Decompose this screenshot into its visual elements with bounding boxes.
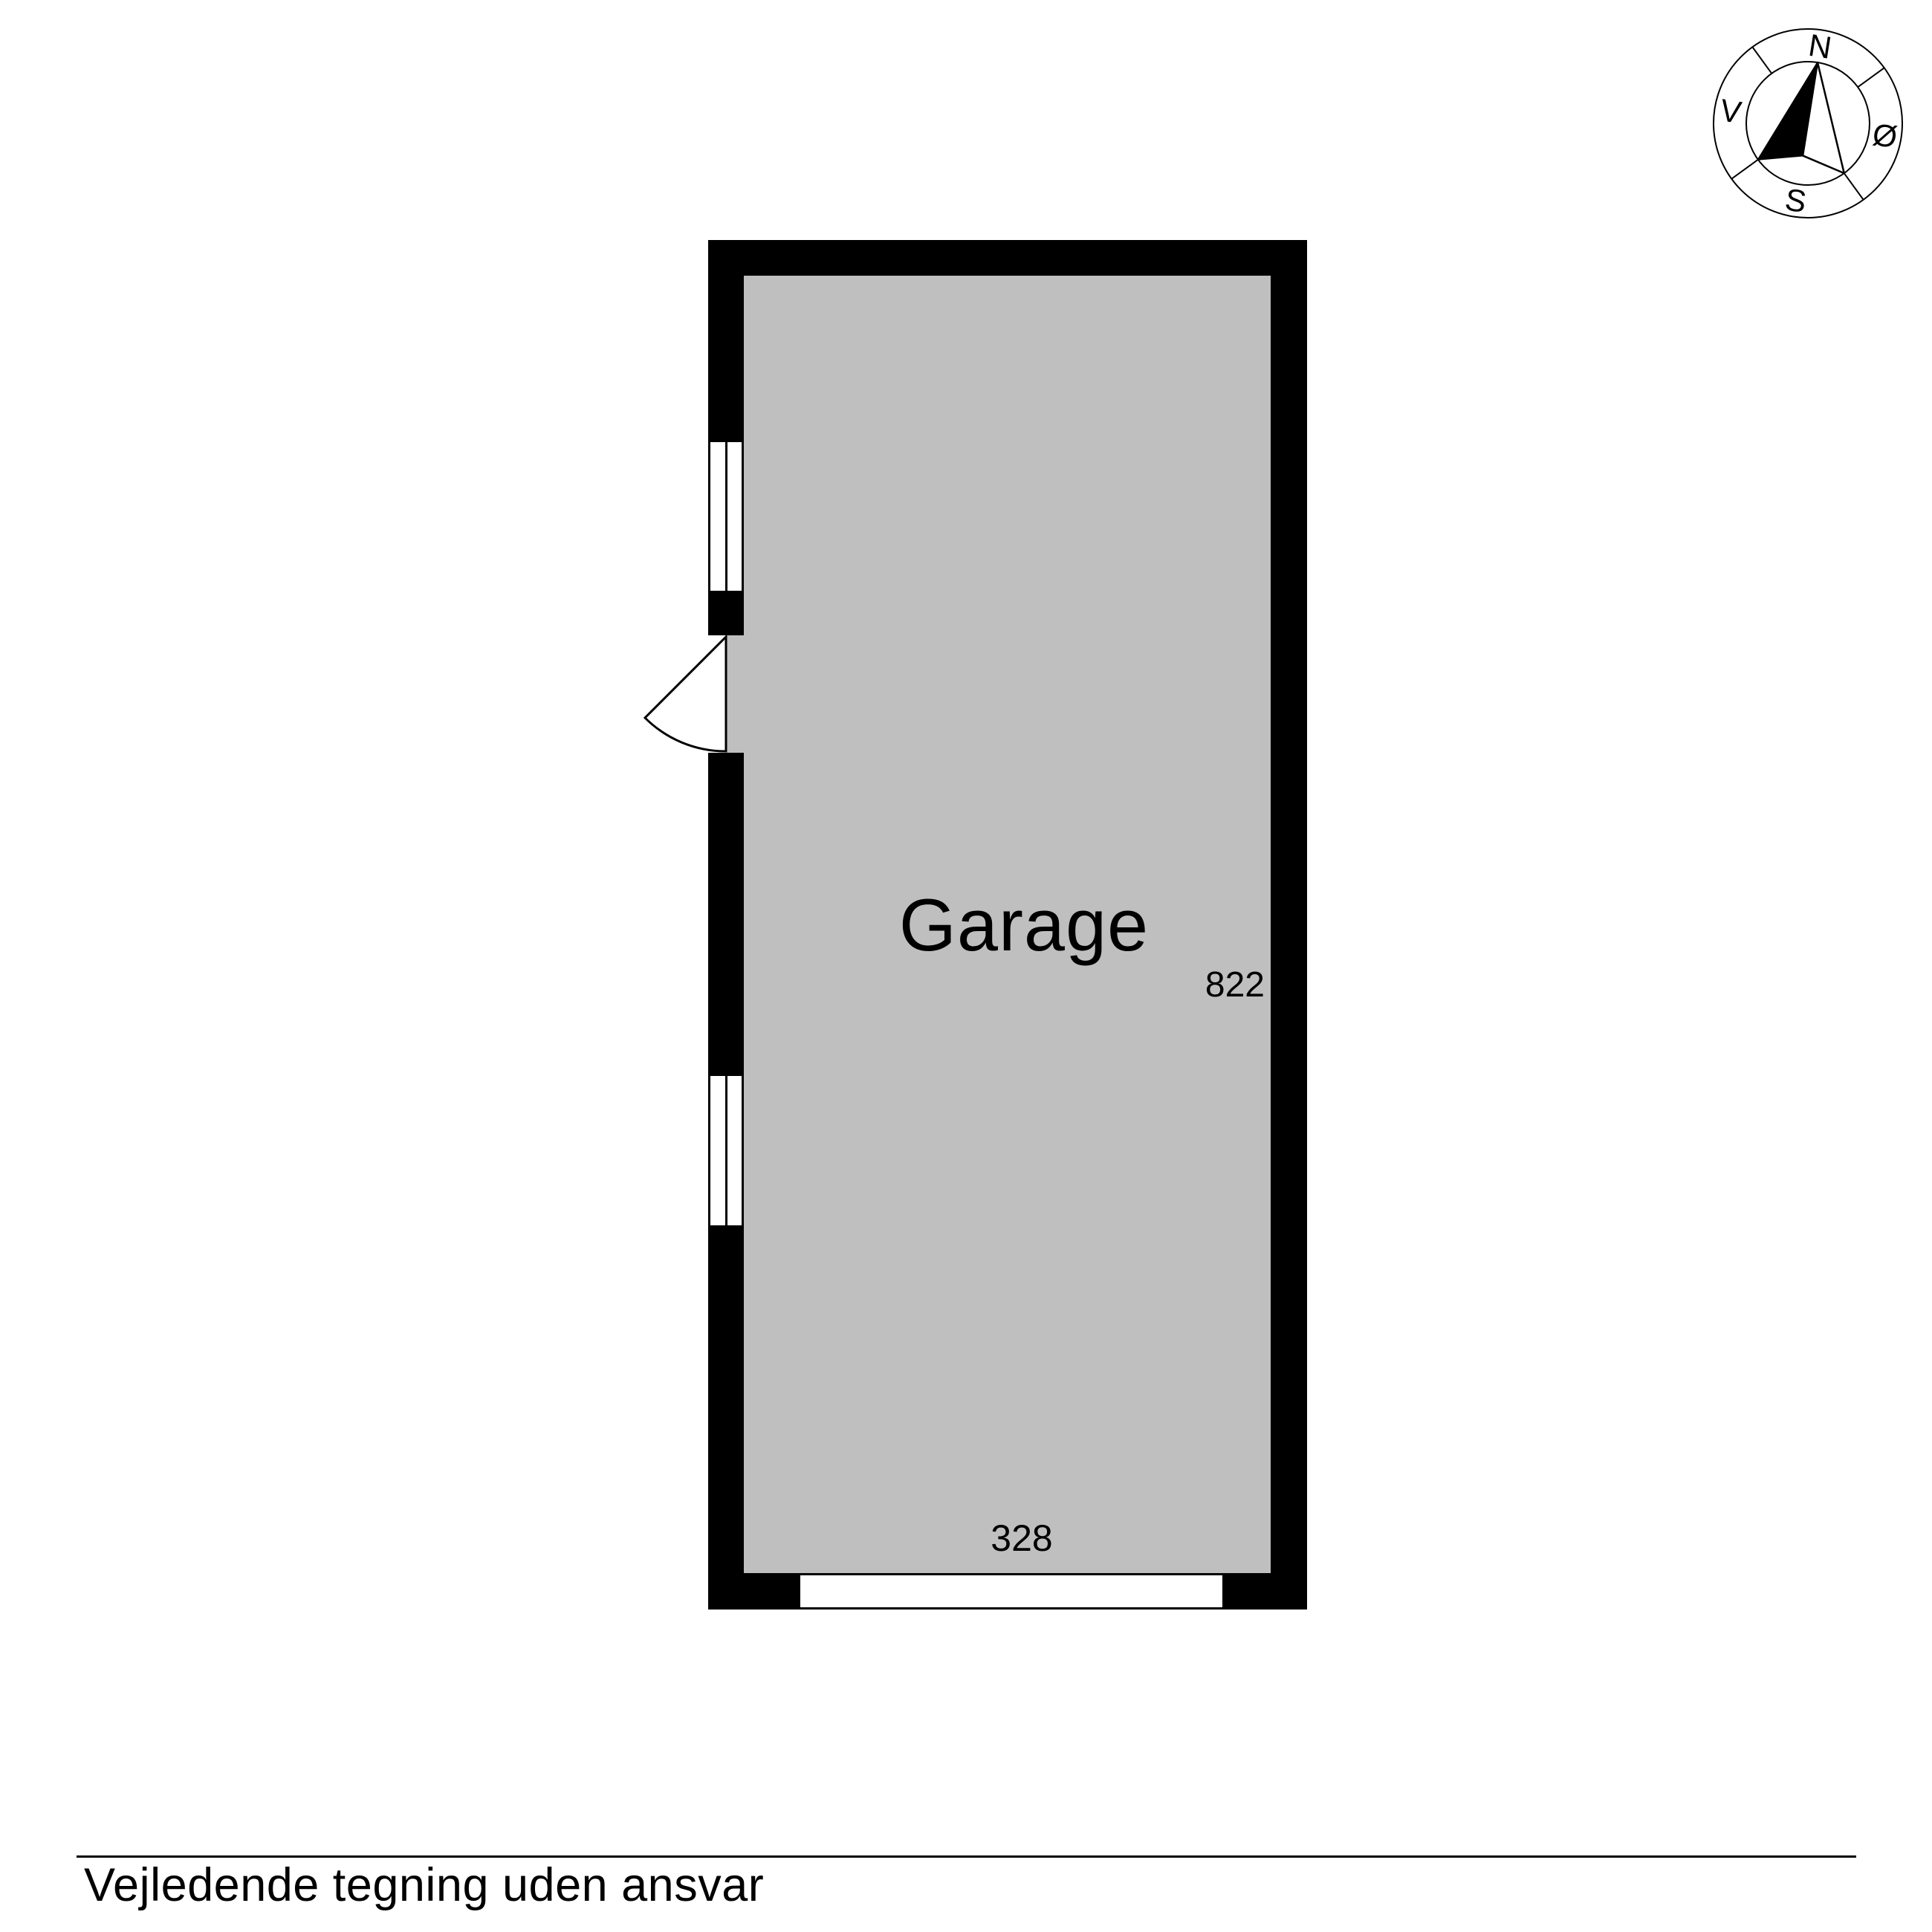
door-leaf-swing-arc <box>645 637 726 751</box>
window-lower <box>708 1074 744 1228</box>
compass-rose-icon: N Ø S V <box>1696 12 1919 235</box>
footer-divider <box>77 1855 1856 1858</box>
garage-door-opening <box>798 1573 1225 1610</box>
footer-disclaimer: Vejledende tegning uden ansvar <box>84 1862 764 1909</box>
window-mullion <box>725 442 727 591</box>
dimension-width-label: 328 <box>991 1520 1052 1557</box>
dimension-height-label: 822 <box>1205 967 1265 1003</box>
window-mullion <box>725 1076 727 1225</box>
window-upper <box>708 440 744 593</box>
door-swing <box>594 624 788 773</box>
room-label: Garage <box>899 888 1149 962</box>
